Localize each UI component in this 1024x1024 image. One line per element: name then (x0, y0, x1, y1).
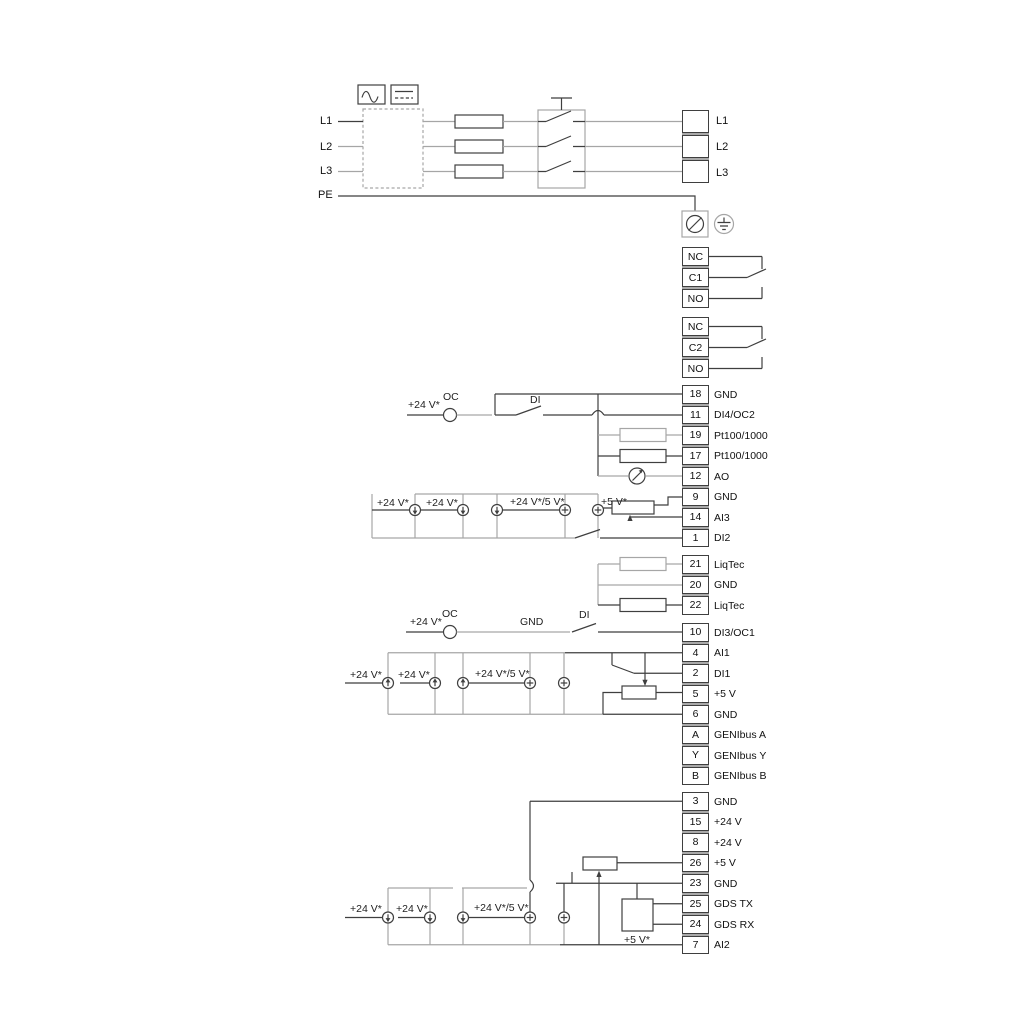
potentiometer (583, 857, 617, 870)
terminal-label: DI4/OC2 (714, 409, 755, 421)
terminal-23: 23 (682, 874, 709, 893)
terminal-label: +5 V (714, 857, 736, 869)
terminal-7: 7 (682, 936, 709, 955)
digital-input-label: DI (530, 394, 541, 406)
phase-label-l3: L3 (320, 165, 332, 177)
voltage-source-icon (559, 678, 570, 689)
power-terminal-block (682, 110, 709, 183)
wiring-diagram: L1 L2 L3 PE L1 L2 L3 NC C1 NO NC C2 NO 1… (0, 0, 1024, 1024)
terminal-8: 8 (682, 833, 709, 852)
relay2-nc: NC (682, 317, 709, 336)
terminal-2: 2 (682, 664, 709, 683)
terminal-label: Pt100/1000 (714, 450, 768, 462)
emc-filter-box (363, 109, 423, 188)
digital-input-label: DI (579, 609, 590, 621)
terminal-label: AI2 (714, 939, 730, 951)
relay-block-2: NC C2 NO (682, 317, 709, 378)
relay-contact-1 (708, 257, 766, 299)
terminal-label: GENIbus Y (714, 750, 766, 762)
terminal-label: GND (714, 796, 737, 808)
terminal-label: AI3 (714, 512, 730, 524)
supply-label: +24 V* (350, 669, 382, 681)
terminal-label: GND (714, 579, 737, 591)
pt100-sensor-2 (620, 450, 666, 463)
terminal-strip-2: 21 20 22 (682, 555, 709, 615)
power-terminal-cell-l2 (682, 135, 709, 158)
terminal-label: LiqTec (714, 600, 744, 612)
relay-contact-2 (708, 327, 766, 369)
terminal-label: +24 V (714, 837, 742, 849)
terminal-label: DI3/OC1 (714, 627, 755, 639)
terminal-label: GDS RX (714, 919, 754, 931)
open-collector-icon (444, 626, 457, 639)
fuse-l1 (455, 115, 503, 128)
terminal-6: 6 (682, 705, 709, 724)
terminal-label: AO (714, 471, 729, 483)
terminal-label: GND (714, 389, 737, 401)
terminal-a: A (682, 726, 709, 745)
supply-label: +5 V* (601, 496, 627, 508)
open-collector-label: OC (442, 608, 458, 620)
digital-input-4-wiring (407, 394, 682, 484)
terminal-label: AI1 (714, 647, 730, 659)
wire-layer (0, 0, 1024, 1024)
power-terminal-cell-l1 (682, 110, 709, 133)
liqtec-sensor-1 (620, 558, 666, 571)
terminal-12: 12 (682, 467, 709, 486)
analog-output-meter-icon (629, 468, 645, 484)
supply-label: +24 V*/5 V* (510, 496, 565, 508)
relay1-c1: C1 (682, 268, 709, 287)
dc-symbol-icon (391, 85, 418, 104)
terminal-y: Y (682, 746, 709, 765)
terminal-9: 9 (682, 488, 709, 507)
phase-label-l1: L1 (320, 115, 332, 127)
terminal-17: 17 (682, 447, 709, 466)
terminal-19: 19 (682, 426, 709, 445)
relay1-nc: NC (682, 247, 709, 266)
terminal-24: 24 (682, 915, 709, 934)
terminal-label: LiqTec (714, 559, 744, 571)
mains-input-section (338, 85, 734, 237)
sensor-supply-wiring (345, 801, 682, 945)
terminal-strip-3: 10 4 2 5 6 A Y B (682, 623, 709, 785)
phase-label-pe: PE (318, 189, 333, 201)
relay1-no: NO (682, 289, 709, 308)
terminal-26: 26 (682, 854, 709, 873)
ground-label: GND (520, 616, 543, 628)
terminal-21: 21 (682, 555, 709, 574)
open-collector-label: OC (443, 391, 459, 403)
terminal-label: GND (714, 709, 737, 721)
terminal-25: 25 (682, 895, 709, 914)
current-source-icon (458, 678, 469, 689)
terminal-label: GND (714, 878, 737, 890)
terminal-3: 3 (682, 792, 709, 811)
terminal-1: 1 (682, 529, 709, 548)
terminal-label: +5 V (714, 688, 736, 700)
relay2-c2: C2 (682, 338, 709, 357)
liqtec-sensor-wiring (598, 558, 682, 612)
pt100-sensor-1 (620, 429, 666, 442)
supply-label: +24 V*/5 V* (474, 902, 529, 914)
terminal-strip-4: 3 15 8 26 23 25 24 7 (682, 792, 709, 954)
phase-out-label-l1: L1 (716, 115, 728, 127)
terminal-label: GDS TX (714, 898, 753, 910)
open-collector-icon (444, 409, 457, 422)
current-source-icon (383, 678, 394, 689)
potentiometer (622, 686, 656, 699)
current-source-icon (410, 505, 421, 516)
terminal-11: 11 (682, 406, 709, 425)
terminal-15: 15 (682, 813, 709, 832)
terminal-label: +24 V (714, 816, 742, 828)
phase-out-label-l2: L2 (716, 141, 728, 153)
fuse-l2 (455, 140, 503, 153)
fuse-l3 (455, 165, 503, 178)
terminal-label: Pt100/1000 (714, 430, 768, 442)
terminal-10: 10 (682, 623, 709, 642)
terminal-18: 18 (682, 385, 709, 404)
terminal-label: DI2 (714, 532, 730, 544)
terminal-22: 22 (682, 596, 709, 615)
supply-label: +24 V* (396, 903, 428, 915)
voltage-source-icon (559, 912, 570, 923)
relay2-no: NO (682, 359, 709, 378)
current-source-icon (383, 912, 394, 923)
supply-label: +24 V* (398, 669, 430, 681)
supply-label: +24 V* (410, 616, 442, 628)
current-source-icon (492, 505, 503, 516)
terminal-b: B (682, 767, 709, 786)
supply-label: +24 V* (350, 903, 382, 915)
terminal-label: GENIbus B (714, 770, 767, 782)
power-terminal-cell-l3 (682, 160, 709, 183)
terminal-label: DI1 (714, 668, 730, 680)
phase-out-label-l3: L3 (716, 167, 728, 179)
terminal-20: 20 (682, 576, 709, 595)
terminal-strip-1: 18 11 19 17 12 9 14 1 (682, 385, 709, 547)
liqtec-sensor-2 (620, 599, 666, 612)
current-source-icon (430, 678, 441, 689)
terminal-label: GENIbus A (714, 729, 766, 741)
supply-label: +24 V*/5 V* (475, 668, 530, 680)
current-source-icon (458, 505, 469, 516)
gds-module (622, 899, 653, 931)
supply-label: +24 V* (408, 399, 440, 411)
earth-icon (715, 215, 734, 234)
supply-label: +24 V* (426, 497, 458, 509)
supply-label: +5 V* (624, 934, 650, 946)
phase-label-l2: L2 (320, 141, 332, 153)
relay-block-1: NC C1 NO (682, 247, 709, 308)
supply-label: +24 V* (377, 497, 409, 509)
terminal-14: 14 (682, 508, 709, 527)
current-source-icon (458, 912, 469, 923)
terminal-label: GND (714, 491, 737, 503)
terminal-4: 4 (682, 644, 709, 663)
terminal-5: 5 (682, 685, 709, 704)
